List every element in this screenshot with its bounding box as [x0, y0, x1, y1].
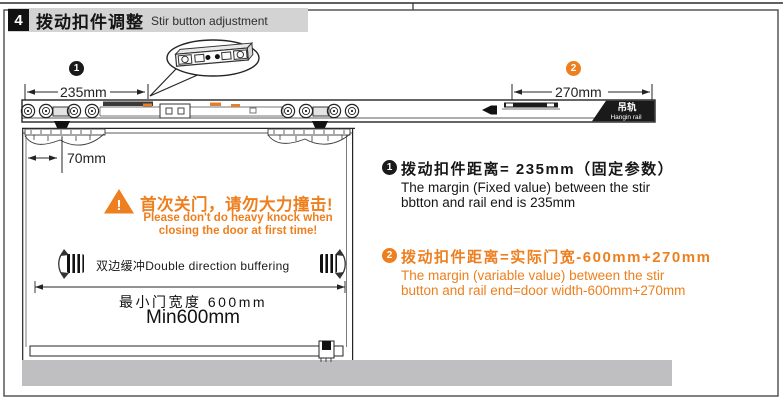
note-2-en-line2: button and rail end=door width-600mm+270… [401, 283, 685, 298]
min-width-label-en: Min600mm [88, 307, 298, 329]
dim-label-270: 270mm [555, 84, 602, 100]
note-1-en-line2: bbtton and rail end is 235mm [401, 195, 650, 210]
marker-1-badge: 1 [69, 61, 84, 76]
warning-exclamation: ! [117, 197, 122, 214]
warning-triangle-icon: ! [104, 189, 134, 214]
warning-text-en: Please don't do heavy knock when closing… [133, 212, 343, 237]
buffer-left-icon [59, 249, 84, 279]
section-header: 4 拨动扣件调整 Stir button adjustment [8, 8, 308, 32]
note-2-badge: 2 [382, 248, 397, 263]
note-1-text-zh: 拨动扣件距离= 235mm（固定参数） [401, 158, 674, 179]
note-1-badge: 1 [382, 160, 397, 175]
callout-bubble [150, 40, 259, 96]
buffer-right-icon [320, 249, 345, 279]
floor-slab [22, 360, 672, 386]
left-mounting-bracket [25, 129, 105, 145]
note-1-en-line1: The margin (Fixed value) between the sti… [401, 180, 650, 195]
buffering-label: 双边缓冲Double direction buffering [96, 257, 290, 274]
note-2-text-en: The margin (variable value) between the … [401, 268, 685, 298]
marker-2-badge: 2 [566, 61, 581, 76]
door-bottom-guide [30, 341, 343, 362]
warning-en-line2: closing the door at first time! [133, 225, 343, 238]
dim-label-70: 70mm [67, 150, 106, 166]
section-title-zh: 拨动扣件调整 [36, 8, 144, 33]
note-1-text-en: The margin (Fixed value) between the sti… [401, 180, 650, 210]
rail-label-en: Hangin rail [610, 114, 642, 121]
step-number-badge: 4 [8, 9, 29, 31]
warning-en-line1: Please don't do heavy knock when [133, 212, 343, 225]
note-2-en-line1: The margin (variable value) between the … [401, 268, 685, 283]
rail-label-zh: 吊轨 [617, 102, 637, 114]
dim-label-235: 235mm [60, 84, 107, 100]
manual-page: 吊轨 Hangin rail [0, 0, 783, 403]
right-mounting-bracket [268, 129, 350, 144]
section-title-en: Stir button adjustment [151, 14, 268, 28]
diagram-drawing: 吊轨 Hangin rail [0, 0, 783, 403]
note-2-text-zh: 拨动扣件距离=实际门宽-600mm+270mm [401, 246, 711, 267]
